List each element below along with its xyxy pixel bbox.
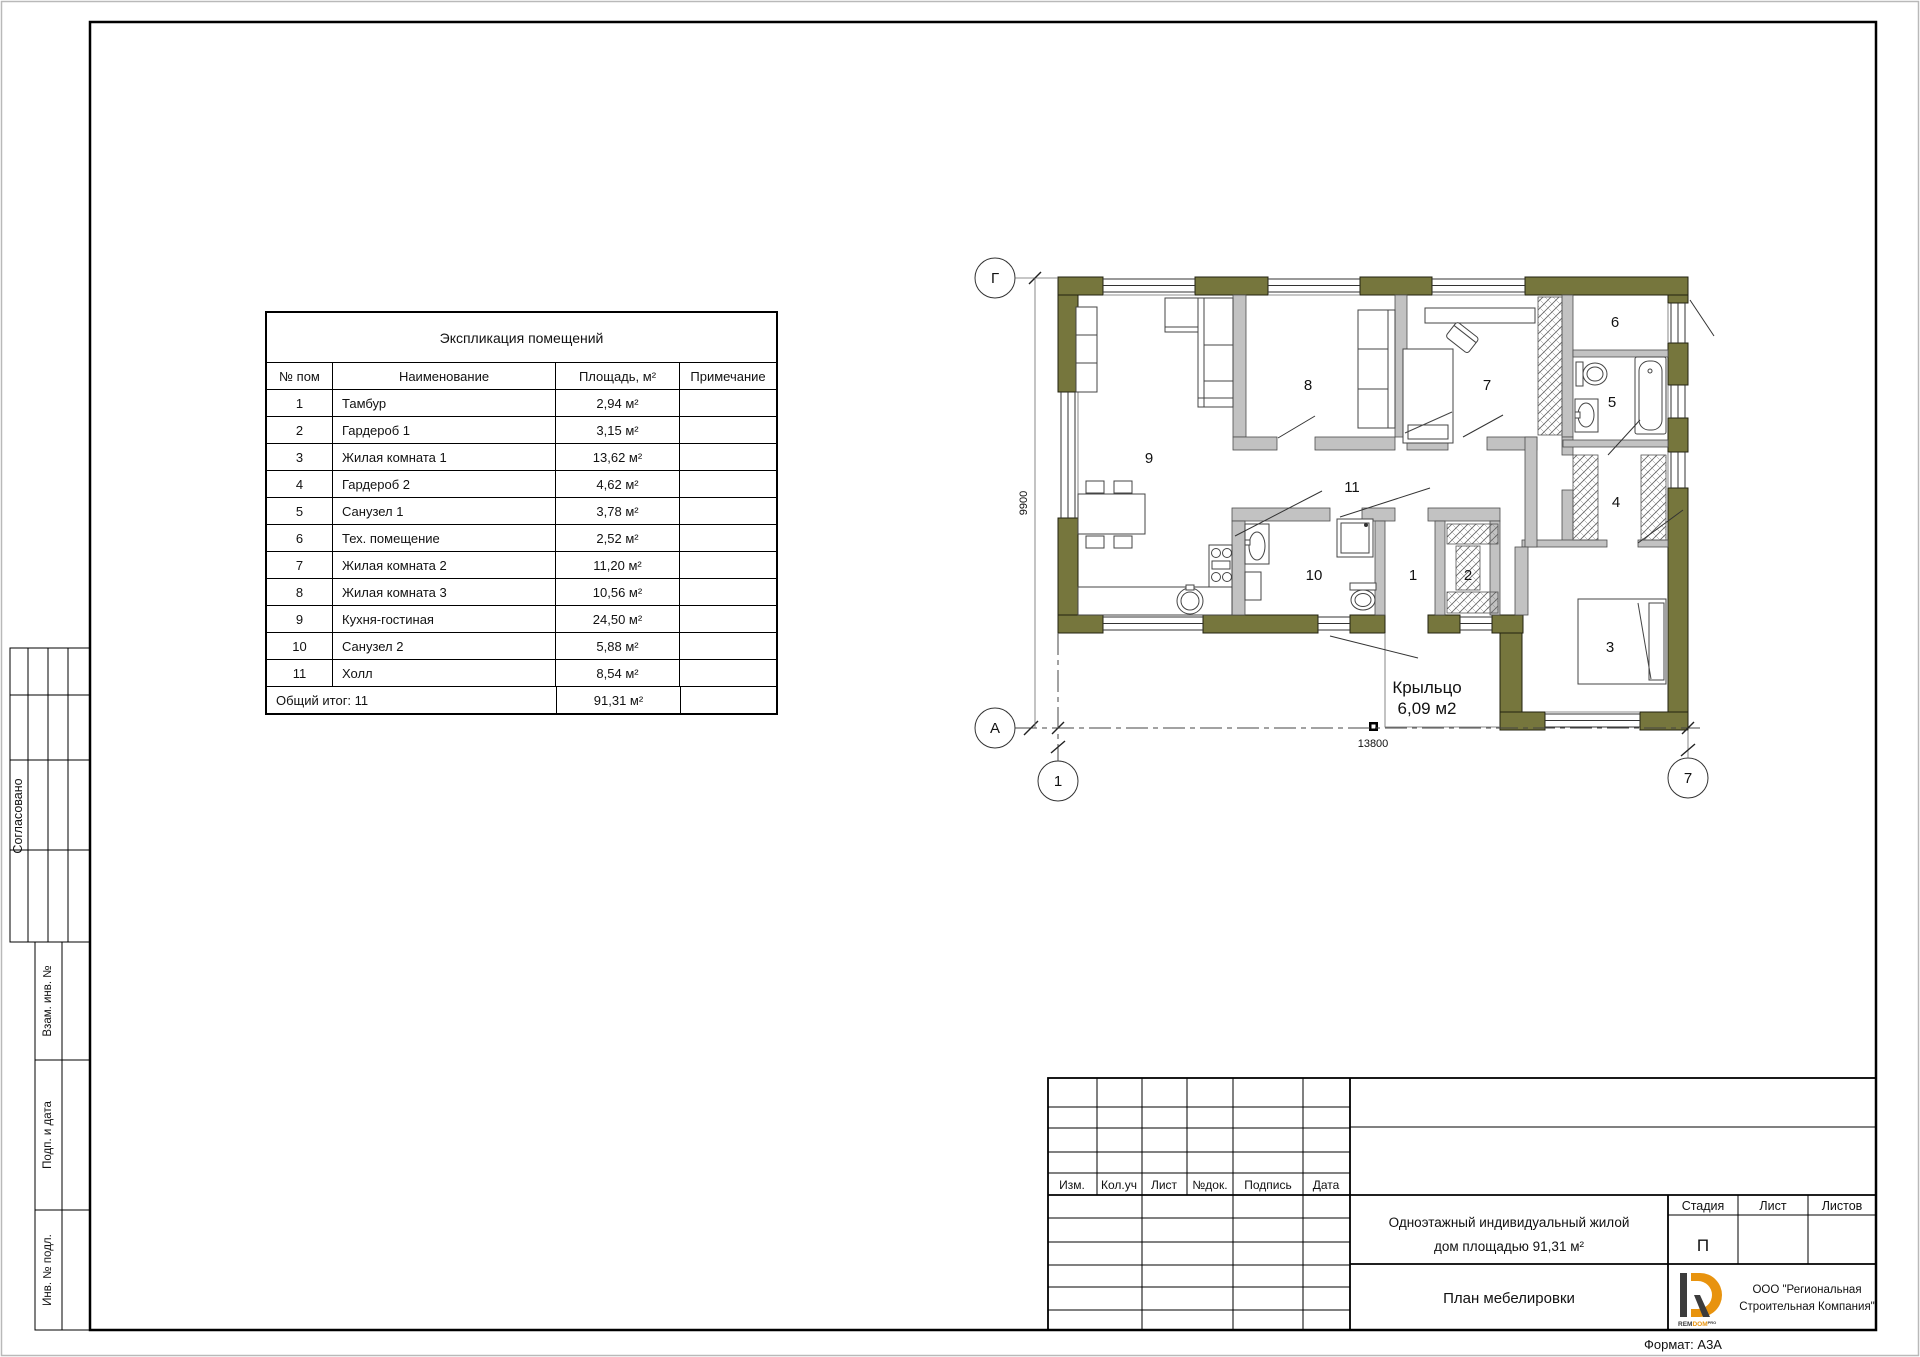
dining-set bbox=[1078, 481, 1145, 548]
header-num: № пом bbox=[267, 363, 332, 389]
cell-note bbox=[679, 633, 776, 659]
sink-room10 bbox=[1245, 524, 1269, 564]
toilet-room5 bbox=[1576, 362, 1607, 386]
cell-area: 11,20 м² bbox=[555, 552, 679, 578]
table-title: Экспликация помещений bbox=[267, 313, 776, 362]
dim-vertical: 9900 bbox=[1018, 491, 1030, 515]
cell-num: 9 bbox=[267, 606, 332, 632]
room-label-6: 6 bbox=[1611, 314, 1619, 331]
table-row: 9Кухня-гостиная24,50 м² bbox=[267, 605, 776, 632]
rev-header-ndok: №док. bbox=[1192, 1178, 1227, 1192]
cell-note bbox=[679, 579, 776, 605]
axis-label-bottom: А bbox=[990, 720, 1000, 737]
company-name-line1: ООО "Региональная bbox=[1752, 1284, 1861, 1296]
cell-area: 2,94 м² bbox=[555, 390, 679, 416]
cabinet-room10 bbox=[1245, 572, 1261, 600]
cell-area: 24,50 м² bbox=[555, 606, 679, 632]
header-note: Примечание bbox=[679, 363, 776, 389]
cell-area: 5,88 м² bbox=[555, 633, 679, 659]
cell-note bbox=[679, 660, 776, 686]
cell-name: Холл bbox=[332, 660, 555, 686]
svg-text:REMDOMPRO: REMDOMPRO bbox=[1678, 1320, 1716, 1328]
tv-cabinet bbox=[1076, 307, 1097, 392]
porch: Крыльцо 6,09 м2 bbox=[1330, 633, 1500, 731]
kitchen-counter bbox=[1078, 545, 1232, 615]
cell-area: 8,54 м² bbox=[555, 660, 679, 686]
company-logo: REMDOMPRO bbox=[1678, 1273, 1722, 1328]
stamp-subst-inv-label: Взам. инв. № bbox=[42, 965, 54, 1036]
room-label-9: 9 bbox=[1145, 450, 1153, 467]
logo-text-dom: DOM bbox=[1692, 1321, 1707, 1328]
table-header-row: № пом Наименование Площадь, м² Примечани… bbox=[267, 362, 776, 389]
room-label-3: 3 bbox=[1606, 639, 1614, 656]
room-label-7: 7 bbox=[1483, 377, 1491, 394]
cell-num: 7 bbox=[267, 552, 332, 578]
cell-note bbox=[679, 417, 776, 443]
room-label-11: 11 bbox=[1344, 479, 1360, 496]
axis-label-1: 1 bbox=[1054, 773, 1062, 790]
cell-num: 10 bbox=[267, 633, 332, 659]
cell-note bbox=[679, 390, 776, 416]
porch-label-line1: Крыльцо bbox=[1392, 678, 1461, 697]
cell-note bbox=[679, 552, 776, 578]
cell-area: 4,62 м² bbox=[555, 471, 679, 497]
cell-note bbox=[679, 471, 776, 497]
sofa-room8 bbox=[1358, 310, 1395, 428]
table-row: 6Тех. помещение2,52 м² bbox=[267, 524, 776, 551]
header-area: Площадь, м² bbox=[555, 363, 679, 389]
room-label-1: 1 bbox=[1409, 567, 1417, 584]
cell-num: 8 bbox=[267, 579, 332, 605]
table-row: 4Гардероб 24,62 м² bbox=[267, 470, 776, 497]
project-name-line2: дом площадью 91,31 м² bbox=[1434, 1239, 1584, 1254]
stage-value: П bbox=[1697, 1236, 1709, 1255]
cell-num: 11 bbox=[267, 660, 332, 686]
logo-text-rem: REM bbox=[1678, 1321, 1692, 1328]
cell-name: Жилая комната 3 bbox=[332, 579, 555, 605]
sheet-header: Лист bbox=[1759, 1199, 1786, 1213]
cell-name: Санузел 2 bbox=[332, 633, 555, 659]
cell-num: 4 bbox=[267, 471, 332, 497]
cell-name: Кухня-гостиная bbox=[332, 606, 555, 632]
rev-header-list: Лист bbox=[1151, 1178, 1178, 1192]
cell-name: Жилая комната 1 bbox=[332, 444, 555, 470]
rev-header-koluch: Кол.уч bbox=[1101, 1178, 1137, 1192]
table-body: 1Тамбур2,94 м²2Гардероб 13,15 м²3Жилая к… bbox=[267, 389, 776, 686]
cell-name: Тех. помещение bbox=[332, 525, 555, 551]
stage-header: Стадия bbox=[1682, 1199, 1725, 1213]
bathtub bbox=[1635, 357, 1666, 434]
cell-area: 10,56 м² bbox=[555, 579, 679, 605]
floor-plan: Крыльцо 6,09 м2 9 8 7 6 5 4 11 10 1 2 3 … bbox=[975, 258, 1714, 801]
axis-label-top: Г bbox=[991, 270, 999, 287]
bed-room7 bbox=[1403, 349, 1453, 443]
cell-num: 6 bbox=[267, 525, 332, 551]
stamp-sign-date-label: Подп. и дата bbox=[42, 1101, 54, 1169]
cell-note bbox=[679, 606, 776, 632]
table-total-row: Общий итог: 11 91,31 м² bbox=[267, 686, 776, 713]
rev-header-izm: Изм. bbox=[1059, 1178, 1085, 1192]
room-label-5: 5 bbox=[1608, 394, 1616, 411]
dim-horizontal: 13800 bbox=[1358, 738, 1389, 750]
cell-area: 3,78 м² bbox=[555, 498, 679, 524]
cell-name: Санузел 1 bbox=[332, 498, 555, 524]
left-stamp-strip: Согласовано Взам. инв. № Подп. и дата Ин… bbox=[10, 648, 90, 1330]
cell-note bbox=[679, 525, 776, 551]
corner-drain-mark bbox=[1690, 300, 1714, 336]
room-label-10: 10 bbox=[1306, 567, 1323, 584]
cell-num: 1 bbox=[267, 390, 332, 416]
drawing-sheet: Согласовано Взам. инв. № Подп. и дата Ин… bbox=[0, 0, 1920, 1357]
table-row: 1Тамбур2,94 м² bbox=[267, 389, 776, 416]
room-label-8: 8 bbox=[1304, 377, 1312, 394]
project-name-line1: Одноэтажный индивидуальный жилой bbox=[1389, 1215, 1630, 1230]
table-row: 7Жилая комната 211,20 м² bbox=[267, 551, 776, 578]
cell-name: Гардероб 1 bbox=[332, 417, 555, 443]
cell-name: Жилая комната 2 bbox=[332, 552, 555, 578]
total-note bbox=[680, 687, 776, 713]
porch-label-line2: 6,09 м2 bbox=[1398, 699, 1457, 718]
table-row: 3Жилая комната 113,62 м² bbox=[267, 443, 776, 470]
stamp-inv-orig-label: Инв. № подл. bbox=[42, 1234, 54, 1306]
cell-num: 3 bbox=[267, 444, 332, 470]
room-label-2: 2 bbox=[1464, 567, 1472, 584]
shower bbox=[1337, 519, 1373, 557]
title-block: Изм. Кол.уч Лист №док. Подпись Дата Одно… bbox=[1048, 1078, 1876, 1330]
rev-header-data: Дата bbox=[1313, 1178, 1340, 1192]
interior-walls bbox=[1232, 295, 1668, 615]
cell-name: Гардероб 2 bbox=[332, 471, 555, 497]
desk bbox=[1425, 308, 1535, 323]
drawing-title: План мебелировки bbox=[1443, 1290, 1575, 1307]
cell-area: 2,52 м² bbox=[555, 525, 679, 551]
header-name: Наименование bbox=[332, 363, 555, 389]
total-area: 91,31 м² bbox=[556, 687, 680, 713]
cell-area: 3,15 м² bbox=[555, 417, 679, 443]
logo-text-sup: PRO bbox=[1708, 1320, 1717, 1325]
sheets-header: Листов bbox=[1822, 1199, 1863, 1213]
corner-sofa bbox=[1165, 298, 1233, 407]
axis-label-7: 7 bbox=[1684, 770, 1692, 787]
company-name-line2: Строительная Компания" bbox=[1739, 1301, 1875, 1313]
table-row: 11Холл8,54 м² bbox=[267, 659, 776, 686]
porch-leader bbox=[1330, 636, 1418, 658]
table-row: 10Санузел 25,88 м² bbox=[267, 632, 776, 659]
cell-note bbox=[679, 498, 776, 524]
table-row: 5Санузел 13,78 м² bbox=[267, 497, 776, 524]
bed-room3 bbox=[1578, 599, 1666, 684]
toilet-room10 bbox=[1350, 583, 1376, 610]
cell-note bbox=[679, 444, 776, 470]
table-row: 8Жилая комната 310,56 м² bbox=[267, 578, 776, 605]
cell-num: 2 bbox=[267, 417, 332, 443]
table-row: 2Гардероб 13,15 м² bbox=[267, 416, 776, 443]
stamp-agreed-label: Согласовано bbox=[11, 778, 25, 853]
total-label: Общий итог: 11 bbox=[267, 687, 556, 713]
cell-num: 5 bbox=[267, 498, 332, 524]
room-label-4: 4 bbox=[1612, 494, 1620, 511]
sink-room5 bbox=[1575, 399, 1598, 432]
format-note: Формат: А3А bbox=[1644, 1337, 1722, 1352]
wardrobe-hatches bbox=[1447, 297, 1666, 613]
room-schedule-table: Экспликация помещений № пом Наименование… bbox=[265, 311, 778, 715]
cell-name: Тамбур bbox=[332, 390, 555, 416]
cell-area: 13,62 м² bbox=[555, 444, 679, 470]
rev-header-podpis: Подпись bbox=[1244, 1178, 1292, 1192]
